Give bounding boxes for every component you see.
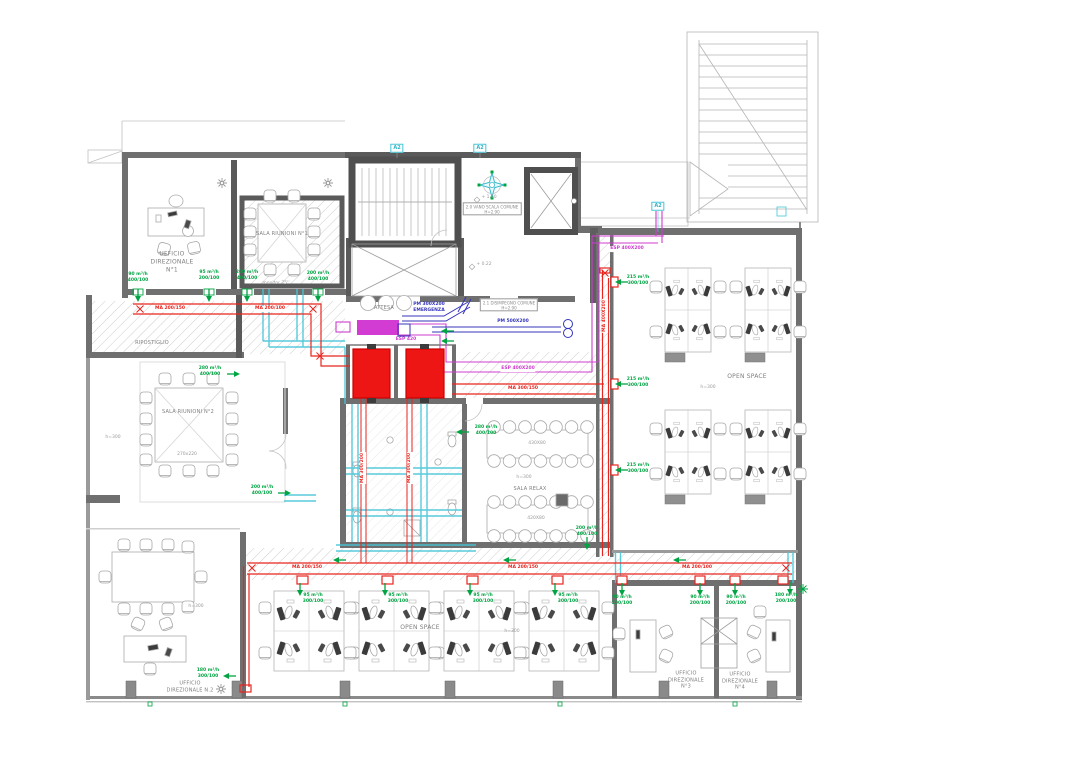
floor-plan-drawing xyxy=(0,0,1086,768)
workstation-cluster xyxy=(650,410,726,504)
floor-plan-canvas: UFFICIO DIREZIONALE N°1 SALA RIUNIONI N°… xyxy=(0,0,1086,768)
workstation-cluster xyxy=(514,591,614,671)
external-stair xyxy=(687,32,818,228)
ceiling-fan-icon xyxy=(323,178,333,188)
ceiling-fan-icon xyxy=(217,178,227,188)
workstation-cluster xyxy=(429,591,529,671)
duct-fresh-blue-layer xyxy=(398,297,573,338)
workstation-cluster xyxy=(730,268,806,362)
stair-core xyxy=(352,160,458,244)
ahu-unit-2 xyxy=(406,349,444,398)
workstation-cluster xyxy=(650,268,726,362)
ceiling-fan-icon xyxy=(216,684,226,694)
workstation-cluster xyxy=(344,591,444,671)
level-marker-icon xyxy=(469,197,480,270)
workstation-cluster xyxy=(259,591,359,671)
ceiling-fan-icon xyxy=(798,584,808,594)
ahu-unit-1 xyxy=(353,349,390,398)
workstation-cluster xyxy=(730,410,806,504)
elevator xyxy=(527,170,577,232)
north-arrow-icon xyxy=(478,171,507,200)
